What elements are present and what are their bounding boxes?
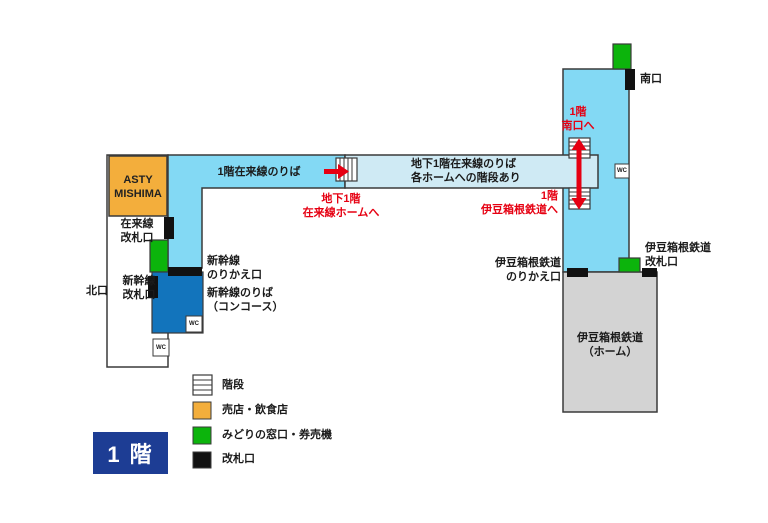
midori-ticket-office-block — [150, 240, 168, 272]
izuhakone-transfer-gate-bar — [567, 268, 588, 277]
south-ticket-machine-block — [613, 44, 631, 69]
station-floor-map: ASTY MISHIMA 在来線 改札口 新幹線 改札口 北口 1階在来線のりば… — [0, 0, 768, 523]
shinkansen-gate-bar — [148, 276, 158, 298]
b1-underpass-box — [345, 155, 598, 188]
izuhakone-platform-area — [563, 272, 657, 412]
legend-swatch-gates — [193, 452, 211, 468]
asty-mishima-block — [109, 156, 167, 216]
shinkansen-transfer-gate-bar — [168, 267, 202, 276]
south-exit-gate-bar — [625, 69, 635, 90]
jr-concourse-area — [168, 155, 345, 268]
izuhakone-gate-bar — [642, 268, 657, 277]
legend-swatch-shops — [193, 402, 211, 419]
wc-box-north — [153, 339, 169, 356]
stairs-icon-legend — [193, 375, 212, 395]
legend-swatch-ticket-office — [193, 427, 211, 444]
wc-box-south — [615, 164, 629, 178]
wc-box-shinkansen — [186, 316, 202, 332]
jr-local-gate-bar — [164, 217, 174, 239]
floor-badge: 1 階 — [93, 432, 168, 474]
floor-badge-label: 1 階 — [107, 437, 153, 469]
izuhakone-ticket-machine-block — [619, 258, 640, 272]
